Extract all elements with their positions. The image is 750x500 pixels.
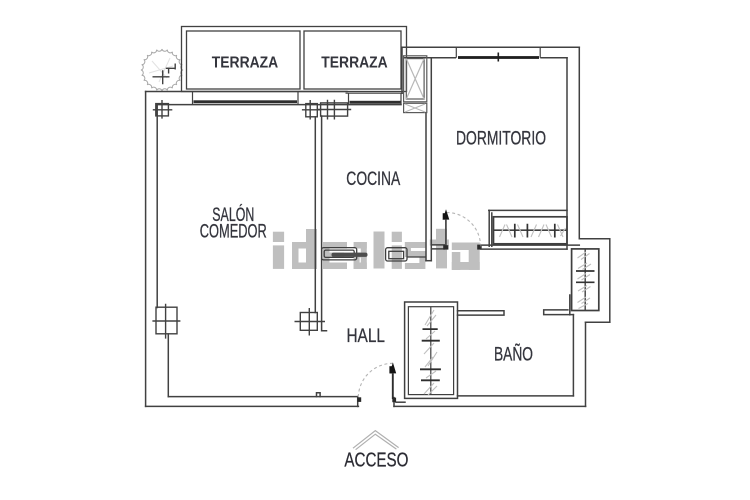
svg-text:TERRAZA: TERRAZA [212, 54, 279, 71]
svg-text:ACCESO: ACCESO [344, 450, 408, 472]
svg-text:HALL: HALL [346, 326, 385, 347]
svg-text:COCINA: COCINA [346, 169, 400, 190]
svg-text:COMEDOR: COMEDOR [200, 222, 267, 243]
svg-text:BAÑO: BAÑO [494, 343, 533, 365]
svg-text:DORMITORIO: DORMITORIO [456, 128, 546, 149]
svg-text:TERRAZA: TERRAZA [321, 54, 388, 71]
